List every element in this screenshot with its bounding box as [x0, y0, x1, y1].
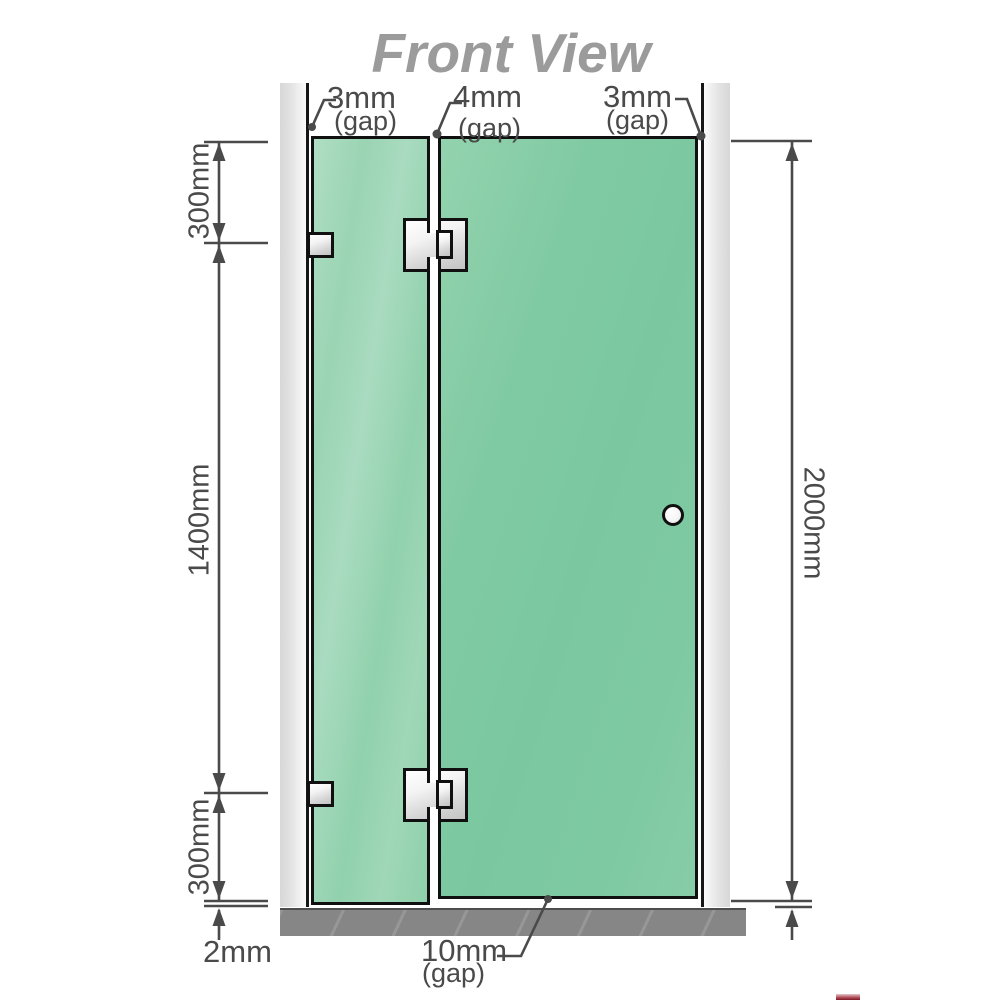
hinge-top-tab — [436, 230, 453, 259]
door-glass-panel — [438, 136, 698, 899]
floor-base — [280, 908, 746, 936]
hinge-bottom-tab — [436, 780, 453, 809]
left-wall — [280, 83, 309, 907]
right-wall — [701, 83, 730, 907]
dim-2000mm: 2000mm — [799, 467, 828, 580]
gap-right-qualifier: (gap) — [606, 107, 669, 134]
dim-300mm-top: 300mm — [186, 143, 215, 240]
dim-1400mm: 1400mm — [186, 464, 215, 577]
front-view-diagram: Front View — [0, 0, 1000, 1000]
gap-middle-qualifier: (gap) — [458, 115, 521, 142]
wall-bracket-bottom — [307, 781, 334, 807]
hinge-top-gap-slot-lower — [427, 257, 441, 276]
dim-300mm-bottom: 300mm — [186, 799, 215, 896]
hinge-bottom-gap-slot-lower — [427, 807, 441, 826]
partial-logo-mark — [836, 994, 860, 1000]
door-knob-icon — [662, 504, 684, 526]
dim-2mm: 2mm — [203, 936, 272, 967]
gap-left-qualifier: (gap) — [334, 108, 397, 135]
gap-middle-value: 4mm — [453, 81, 522, 112]
page-title: Front View — [371, 26, 650, 81]
gap-bottom-qualifier: (gap) — [422, 960, 485, 987]
wall-bracket-top — [307, 232, 334, 258]
